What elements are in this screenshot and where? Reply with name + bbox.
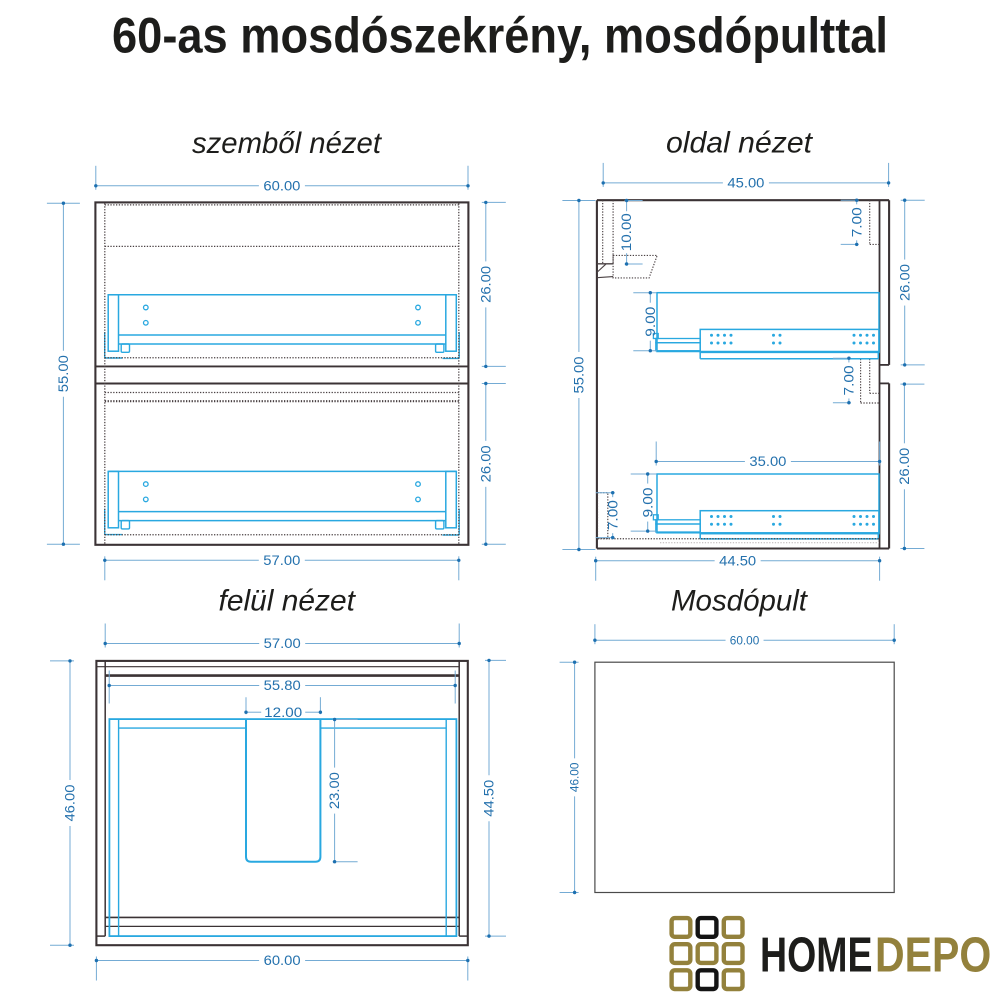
svg-text:23.00: 23.00	[327, 772, 342, 809]
svg-text:60.00: 60.00	[264, 953, 301, 968]
svg-text:felül nézet: felül nézet	[219, 585, 357, 618]
svg-text:oldal nézet: oldal nézet	[666, 127, 814, 160]
svg-text:26.00: 26.00	[897, 448, 912, 485]
svg-text:7.00: 7.00	[849, 207, 864, 237]
svg-text:szemből nézet: szemből nézet	[192, 127, 383, 160]
svg-text:26.00: 26.00	[897, 264, 912, 301]
svg-text:10.00: 10.00	[619, 213, 634, 251]
svg-text:9.00: 9.00	[643, 307, 658, 337]
svg-text:DEPO: DEPO	[875, 928, 991, 982]
svg-text:7.00: 7.00	[842, 365, 857, 395]
svg-text:26.00: 26.00	[478, 266, 493, 303]
svg-text:60.00: 60.00	[730, 633, 760, 647]
svg-text:57.00: 57.00	[264, 636, 301, 651]
svg-text:9.00: 9.00	[640, 488, 655, 518]
svg-text:55.00: 55.00	[572, 357, 587, 394]
svg-text:HOME: HOME	[760, 928, 873, 982]
svg-text:45.00: 45.00	[727, 176, 764, 191]
svg-text:44.50: 44.50	[719, 553, 756, 568]
svg-text:26.00: 26.00	[478, 445, 493, 482]
svg-text:55.00: 55.00	[56, 355, 71, 392]
svg-text:60.00: 60.00	[263, 178, 300, 193]
svg-text:46.00: 46.00	[63, 785, 78, 822]
svg-text:7.00: 7.00	[605, 500, 620, 530]
svg-text:55.80: 55.80	[264, 678, 301, 693]
svg-text:35.00: 35.00	[749, 454, 786, 469]
svg-text:57.00: 57.00	[263, 553, 300, 568]
svg-text:Mosdópult: Mosdópult	[671, 585, 809, 618]
svg-text:60-as mosdószekrény, mosdópult: 60-as mosdószekrény, mosdópulttal	[112, 8, 888, 64]
svg-text:12.00: 12.00	[264, 705, 302, 720]
svg-text:44.50: 44.50	[482, 780, 497, 817]
svg-text:46.00: 46.00	[568, 762, 582, 792]
